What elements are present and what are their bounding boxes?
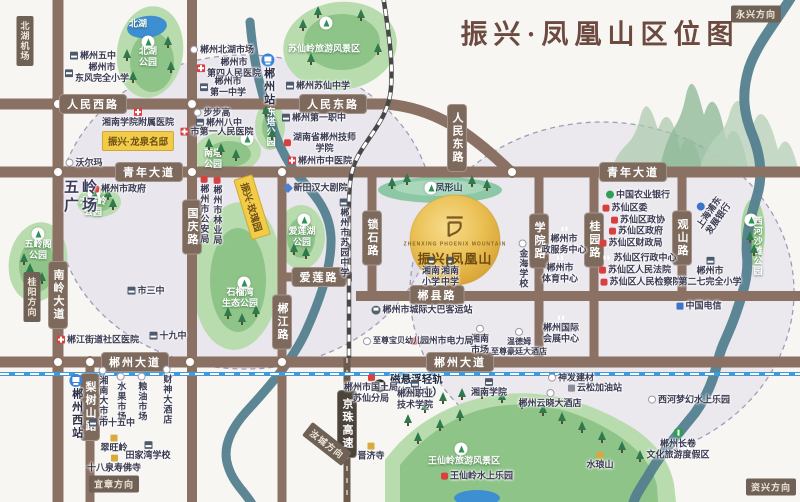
g-icon <box>600 278 607 285</box>
tree-icon <box>403 173 411 182</box>
tree-icon <box>436 419 444 428</box>
tree-icon <box>164 36 172 45</box>
project-capsule: 振兴·龙泉名邸 <box>102 131 174 151</box>
bus-icon <box>371 305 380 314</box>
tree-icon <box>20 253 28 262</box>
t-icon <box>110 435 117 442</box>
s-icon <box>89 419 97 427</box>
c-icon <box>363 337 371 345</box>
b-icon <box>601 254 611 262</box>
g-icon <box>611 216 618 223</box>
convention-center: 郴州国际会展中心 <box>543 314 579 345</box>
tree-icon <box>109 198 117 207</box>
china-telecom: 中国电信 <box>676 301 721 312</box>
tree-icon <box>414 432 422 441</box>
no15-middle-school: 市十五中 <box>89 418 135 429</box>
park-badge-icon <box>455 443 468 456</box>
g-icon <box>599 239 606 246</box>
tree-icon <box>618 441 626 450</box>
road-junction <box>84 356 96 368</box>
road-label: 人民东路 <box>299 94 367 114</box>
xiangnan-market: 湘南市场 <box>471 325 489 356</box>
tree-icon <box>468 175 476 184</box>
no3-middle-school: 市三中 <box>127 286 164 297</box>
park-label: 王仙岭旅游风景区 <box>428 455 500 466</box>
chenzhou-no5-school: 郴州五中 <box>70 51 116 62</box>
tree-icon <box>252 305 260 314</box>
project-logo-icon <box>444 215 466 241</box>
project-badge: ZHENXING PHOENIX MOUNTAIN 振兴|凤凰山 <box>404 215 507 268</box>
park-label: 苏仙岭旅游风景区 <box>288 43 360 54</box>
changjuan-resort: 郴州长卷文化旅游度假区 <box>646 428 709 461</box>
road-label: 郴县路 <box>410 285 465 305</box>
caishen-hotel: 财神大酒店 <box>162 366 173 425</box>
no19-middle-school: 十九中 <box>149 331 186 342</box>
jinji-temple: 晋济寺 <box>357 443 384 462</box>
tree-icon <box>129 71 137 80</box>
first-vocational-school: 郴州第一职中 <box>282 113 346 124</box>
b-icon <box>559 225 569 233</box>
c-icon <box>190 46 198 54</box>
tree-icon <box>598 431 606 440</box>
s-icon <box>65 69 73 77</box>
g-icon <box>441 472 448 479</box>
cuiwangling: 翠旺岭 <box>100 435 127 454</box>
road-junction <box>276 166 288 178</box>
s-icon <box>144 441 152 449</box>
c-icon <box>548 374 556 382</box>
tg-icon <box>673 428 683 438</box>
tree-icon <box>290 243 298 252</box>
xiangnan-affiliated-hospital: 湘南学院附属医院 <box>102 108 174 128</box>
forestry-bureau: 郴州市林业局 <box>212 177 223 245</box>
s-icon <box>127 287 135 295</box>
tree-icon <box>750 244 758 253</box>
tree-icon <box>302 247 310 256</box>
tree-icon <box>26 263 34 272</box>
tree-icon <box>746 231 754 240</box>
suxian-middle-school: 郴州苏仙中学 <box>286 81 350 92</box>
park-label: 凤形山 <box>435 182 462 193</box>
suxian-government: 苏仙区政府 <box>609 226 663 237</box>
tree-icon <box>314 6 322 15</box>
road-junction <box>506 166 518 178</box>
c-icon <box>138 373 146 381</box>
c-icon <box>193 109 201 117</box>
tree-icon <box>217 143 225 152</box>
technician-college: 湖南省郴州技师学院 <box>284 132 356 154</box>
direction-label: 桂阳方向 <box>24 272 41 322</box>
s-icon <box>149 332 157 340</box>
suxian-court: 苏仙区人民法院 <box>599 265 671 276</box>
public-security-bureau: 郴州市公安局 <box>199 176 210 244</box>
h-icon <box>180 128 188 136</box>
g-icon <box>599 266 606 273</box>
s-icon <box>200 83 208 91</box>
xintianhan-theater: 新田汉大剧院 <box>284 183 347 194</box>
walmart: 沃尔玛 <box>65 158 102 169</box>
road-junction <box>184 356 196 368</box>
g-icon <box>602 204 609 211</box>
suxian-procuratorate: 苏仙区人民检察院 <box>600 277 681 288</box>
yunxiao-hotel: 郴州云晓大酒店 <box>518 389 581 409</box>
first-peoples-hospital: 市第一人民医院 <box>180 127 253 138</box>
road-junction <box>52 356 64 368</box>
location-map: 振兴·凤凰山区位图 ZHENXING PHOENIX MOUNTAIN 振兴|凤… <box>0 0 800 502</box>
intercity-bus-station: 郴州市城际大巴客运站 <box>371 305 472 316</box>
park-label: 五岭阁公园 <box>24 239 51 262</box>
tree-icon <box>636 450 644 459</box>
road-label: 人民东路 <box>447 104 467 172</box>
road-label: 青年大道 <box>115 162 183 182</box>
suxian-finance-bureau: 苏仙区财政局 <box>599 238 662 249</box>
h-icon <box>197 64 205 72</box>
s-icon <box>70 52 78 60</box>
tr-icon <box>262 54 275 67</box>
fruit-market: 水果市场 <box>116 373 127 422</box>
tree-icon <box>357 9 365 18</box>
suxian-admin-center: 苏仙区行政中心 <box>601 253 676 264</box>
t-icon <box>110 455 117 462</box>
c-icon <box>648 396 656 404</box>
g-icon <box>367 374 374 381</box>
road-label: 郴州大道 <box>101 352 169 372</box>
s-icon <box>411 380 419 388</box>
tree-icon <box>238 313 246 322</box>
road-label: 南岭大道 <box>48 261 68 329</box>
s-icon <box>706 257 714 265</box>
c-icon <box>99 367 107 375</box>
tree-icon <box>123 49 131 58</box>
g-icon <box>200 176 207 183</box>
tree-icon <box>167 61 175 70</box>
tree-icon <box>232 149 240 158</box>
vocational-tech-college: 郴州职业技术学院 <box>397 380 433 411</box>
park-label: 北湖公园 <box>139 46 157 69</box>
tree-icon <box>456 409 464 418</box>
chenzhou-west-station: 郴州西站 <box>69 374 82 440</box>
suxian-cppcc: 苏仙区政协 <box>611 215 665 226</box>
c-icon <box>65 159 73 167</box>
c-icon <box>117 373 125 381</box>
tr-icon <box>70 374 83 387</box>
h-icon <box>57 336 65 344</box>
direction-label: 宜章方向 <box>89 476 139 493</box>
wyndham-hotel: 温德姆至尊豪廷大酒店 <box>491 328 547 356</box>
shuilangshan: 水琅山 <box>586 452 613 471</box>
tree-icon <box>404 414 412 423</box>
th-icon <box>283 183 293 193</box>
direction-label: 资兴方向 <box>746 479 796 496</box>
tree-icon <box>224 307 232 316</box>
wuling-square: 五岭广场 <box>64 179 100 215</box>
tree-icon <box>388 177 396 186</box>
xihe-dream-water-park: 西河梦幻水上乐园 <box>648 395 730 406</box>
sports-center: 郴州市体育中心 <box>542 254 578 285</box>
suyuan-middle-school: 郴州市苏园中学 <box>339 199 350 278</box>
c-icon <box>519 240 527 248</box>
chenzhou-station: 郴州站 <box>261 54 274 107</box>
tree-icon <box>205 138 213 147</box>
road-junction <box>186 166 198 178</box>
s-icon <box>286 82 294 90</box>
municipal-service-center: 郴州市政服务中心 <box>541 225 586 256</box>
h-icon <box>288 157 296 165</box>
tree-icon <box>299 19 307 28</box>
tree-icon <box>374 43 382 52</box>
b-icon <box>555 254 565 262</box>
tcm-hospital: 郴州市中医院 <box>288 156 352 167</box>
tree-icon <box>458 388 466 397</box>
t-icon <box>596 452 603 459</box>
land-bureau-suxian-branch: 郴州市国土局苏仙分局 <box>344 374 398 404</box>
park-badge-icon <box>298 214 311 227</box>
road-label: 锁石路 <box>362 211 382 266</box>
wangxianling-water-park: 王仙岭水上乐园 <box>441 471 513 482</box>
park-badge-icon <box>320 17 333 30</box>
road-junction <box>52 166 64 178</box>
map-title: 振兴·凤凰山区位图 <box>460 13 739 52</box>
g-icon <box>284 140 291 147</box>
city-government: 郴州市政府 <box>92 184 146 195</box>
shibaquan-shoufo-temple: 十八泉寿佛寺 <box>87 455 141 474</box>
b-icon <box>556 314 566 322</box>
dongfeng-primary-school: 郴州市东风完全小学 <box>65 62 129 84</box>
grain-oil-market: 粮油市场 <box>137 373 148 422</box>
road-label: 郴江路 <box>272 295 292 350</box>
t-icon <box>367 443 374 450</box>
park-label: 北湖 <box>129 18 147 29</box>
c-icon <box>476 325 484 333</box>
tree-icon <box>307 53 315 62</box>
xiangnan-university: 湘南学院 <box>471 378 507 398</box>
g-icon <box>213 177 220 184</box>
s-icon <box>282 114 290 122</box>
tree-icon <box>558 412 566 421</box>
bg-icon <box>606 191 614 199</box>
h-icon <box>134 108 142 116</box>
agricultural-bank: 中国农业银行 <box>606 190 670 201</box>
tree-icon <box>578 421 586 430</box>
g-icon <box>609 227 616 234</box>
tree-icon <box>268 128 276 137</box>
road-label: 青年大道 <box>599 162 667 182</box>
no1-middle-school: 郴州市第一中学 <box>200 76 246 98</box>
project-name-cn: 振兴|凤凰山 <box>418 249 493 268</box>
c-icon <box>163 366 171 374</box>
zhizun-baby-kindergarten: 至尊宝贝幼儿园 <box>363 336 429 346</box>
s-icon <box>340 199 348 207</box>
chenjiang-community-hospital: 郴江街道社区医院 <box>57 335 139 346</box>
direction-label: 北湖机场 <box>17 16 34 66</box>
c-icon <box>546 389 554 397</box>
suxian-committee: 苏仙区委 <box>602 203 647 214</box>
road-junction <box>276 356 288 368</box>
project-name-en: ZHENXING PHOENIX MOUNTAIN <box>404 242 507 248</box>
c-icon <box>515 328 523 336</box>
jinhai-school: 金海学校 <box>518 240 529 289</box>
beihu-market: 郴州北湖市场 <box>190 45 254 56</box>
no27-primary-school: 郴州市第二七完全小学 <box>678 257 741 288</box>
s-icon <box>485 378 493 386</box>
tel-icon <box>676 302 683 309</box>
tree-icon <box>483 179 491 188</box>
